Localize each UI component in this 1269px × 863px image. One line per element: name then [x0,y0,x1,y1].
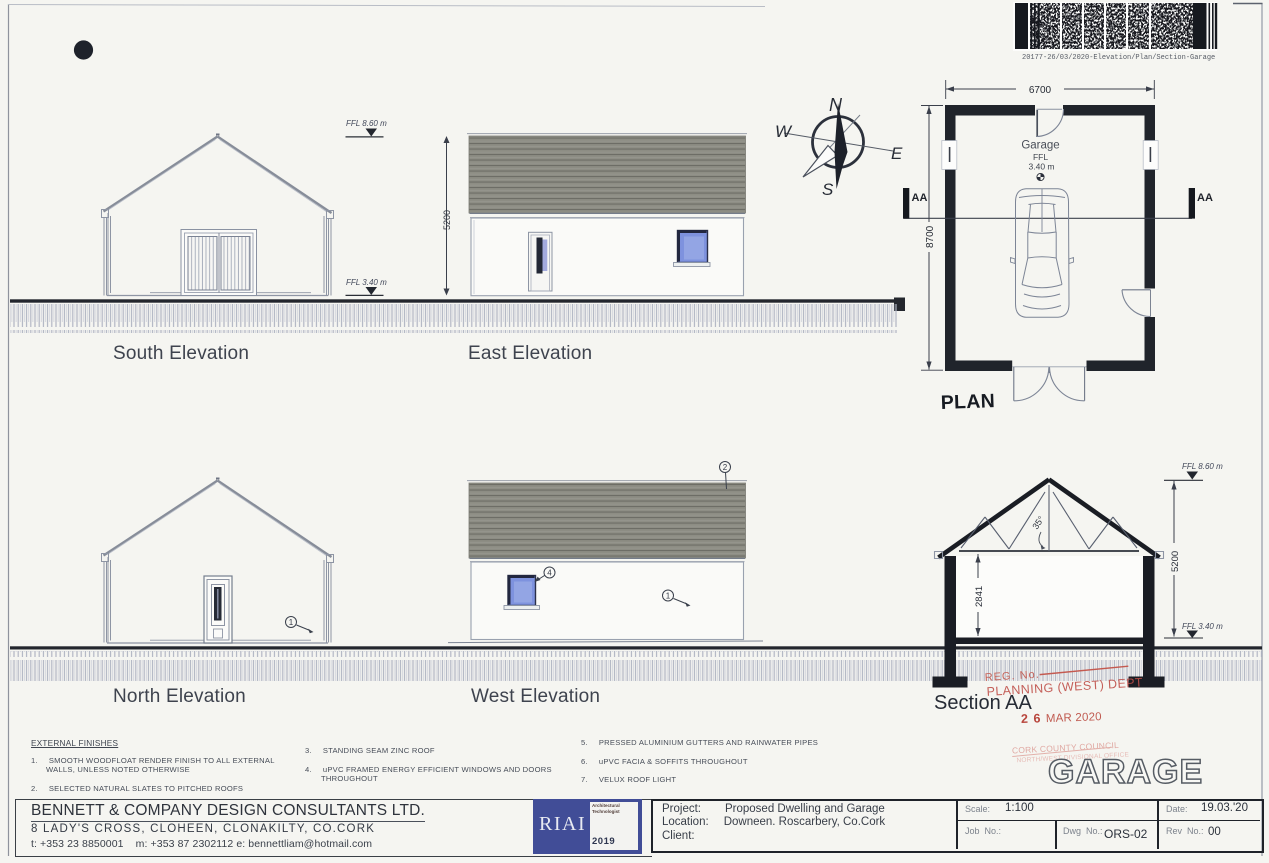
svg-text:6700: 6700 [1029,85,1052,96]
svg-text:GARAGE: GARAGE [1048,753,1203,791]
svg-text:FFL 8.60 m: FFL 8.60 m [1182,462,1223,471]
svg-text:1: 1 [289,618,294,627]
svg-text:FFL 3.40 m: FFL 3.40 m [346,278,387,287]
svg-text:Section AA: Section AA [934,692,1033,714]
svg-text:20177-26/03/2020-Elevation/Pla: 20177-26/03/2020-Elevation/Plan/Section-… [1022,54,1215,62]
svg-text:FFL 8.60 m: FFL 8.60 m [346,119,387,128]
svg-text:4: 4 [547,569,552,578]
svg-text:PLAN: PLAN [940,390,995,414]
svg-text:5200: 5200 [1170,551,1181,572]
svg-text:5200: 5200 [442,210,452,230]
svg-text:S: S [822,180,834,199]
svg-text:35°: 35° [1030,514,1046,531]
svg-text:8700: 8700 [925,225,936,248]
svg-text:AA: AA [912,192,928,204]
svg-text:W: W [775,122,793,141]
svg-text:FFL 3.40 m: FFL 3.40 m [1182,622,1223,631]
svg-text:1: 1 [666,592,671,601]
svg-text:2 6 MAR 2020: 2 6 MAR 2020 [1021,709,1102,726]
svg-text:N: N [829,95,843,115]
svg-text:FFL: FFL [1033,152,1048,162]
svg-text:3.40 m: 3.40 m [1029,162,1055,172]
svg-text:AA: AA [1197,192,1213,204]
svg-text:2841: 2841 [974,586,985,607]
svg-text:Garage: Garage [1021,140,1059,152]
svg-text:2: 2 [723,463,728,472]
svg-text:E: E [891,144,903,163]
